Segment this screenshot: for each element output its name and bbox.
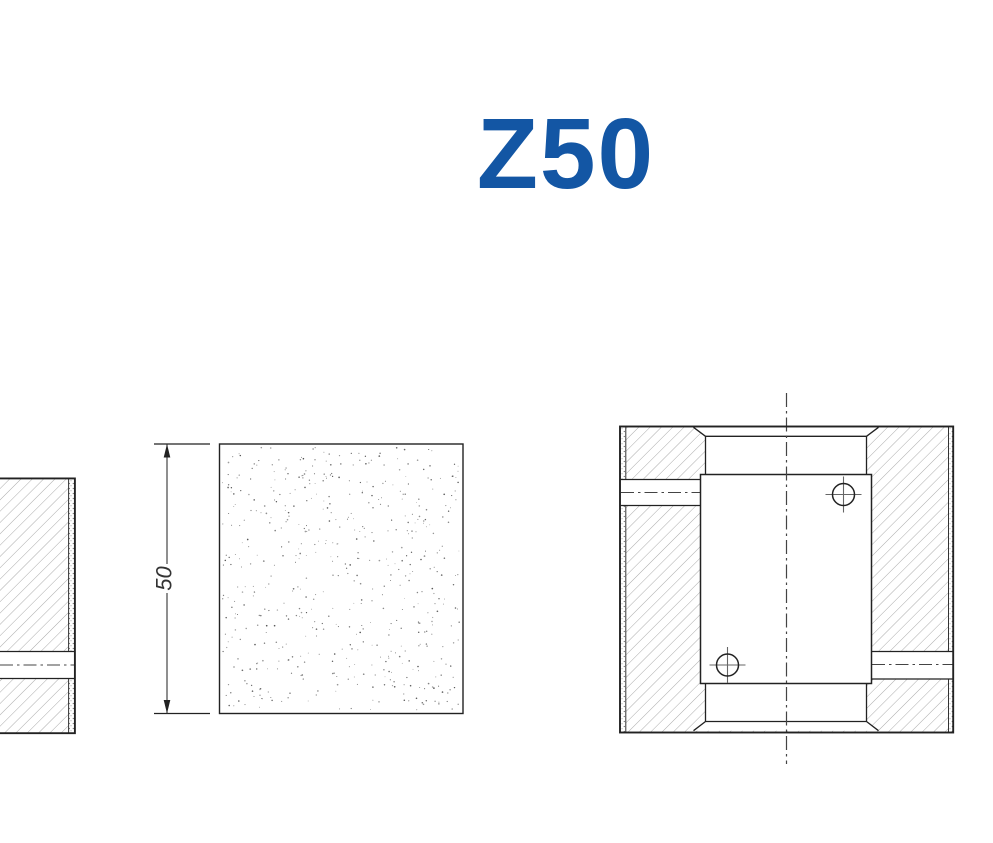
front-view: 50 [140, 430, 470, 726]
drawing-sheet: Z50 [0, 0, 993, 843]
left-channel [621, 480, 701, 506]
side-section-view [619, 390, 955, 768]
page-title: Z50 [477, 104, 655, 204]
left-channel [0, 652, 75, 679]
front-face [220, 444, 464, 714]
arrowhead-down-icon [164, 700, 171, 714]
arrowhead-up-icon [164, 444, 171, 458]
left-section-view [0, 477, 78, 735]
left-body-hatch [0, 478, 75, 733]
dimension-50: 50 [152, 444, 211, 714]
right-channel [872, 652, 953, 680]
dimension-label: 50 [152, 566, 177, 591]
